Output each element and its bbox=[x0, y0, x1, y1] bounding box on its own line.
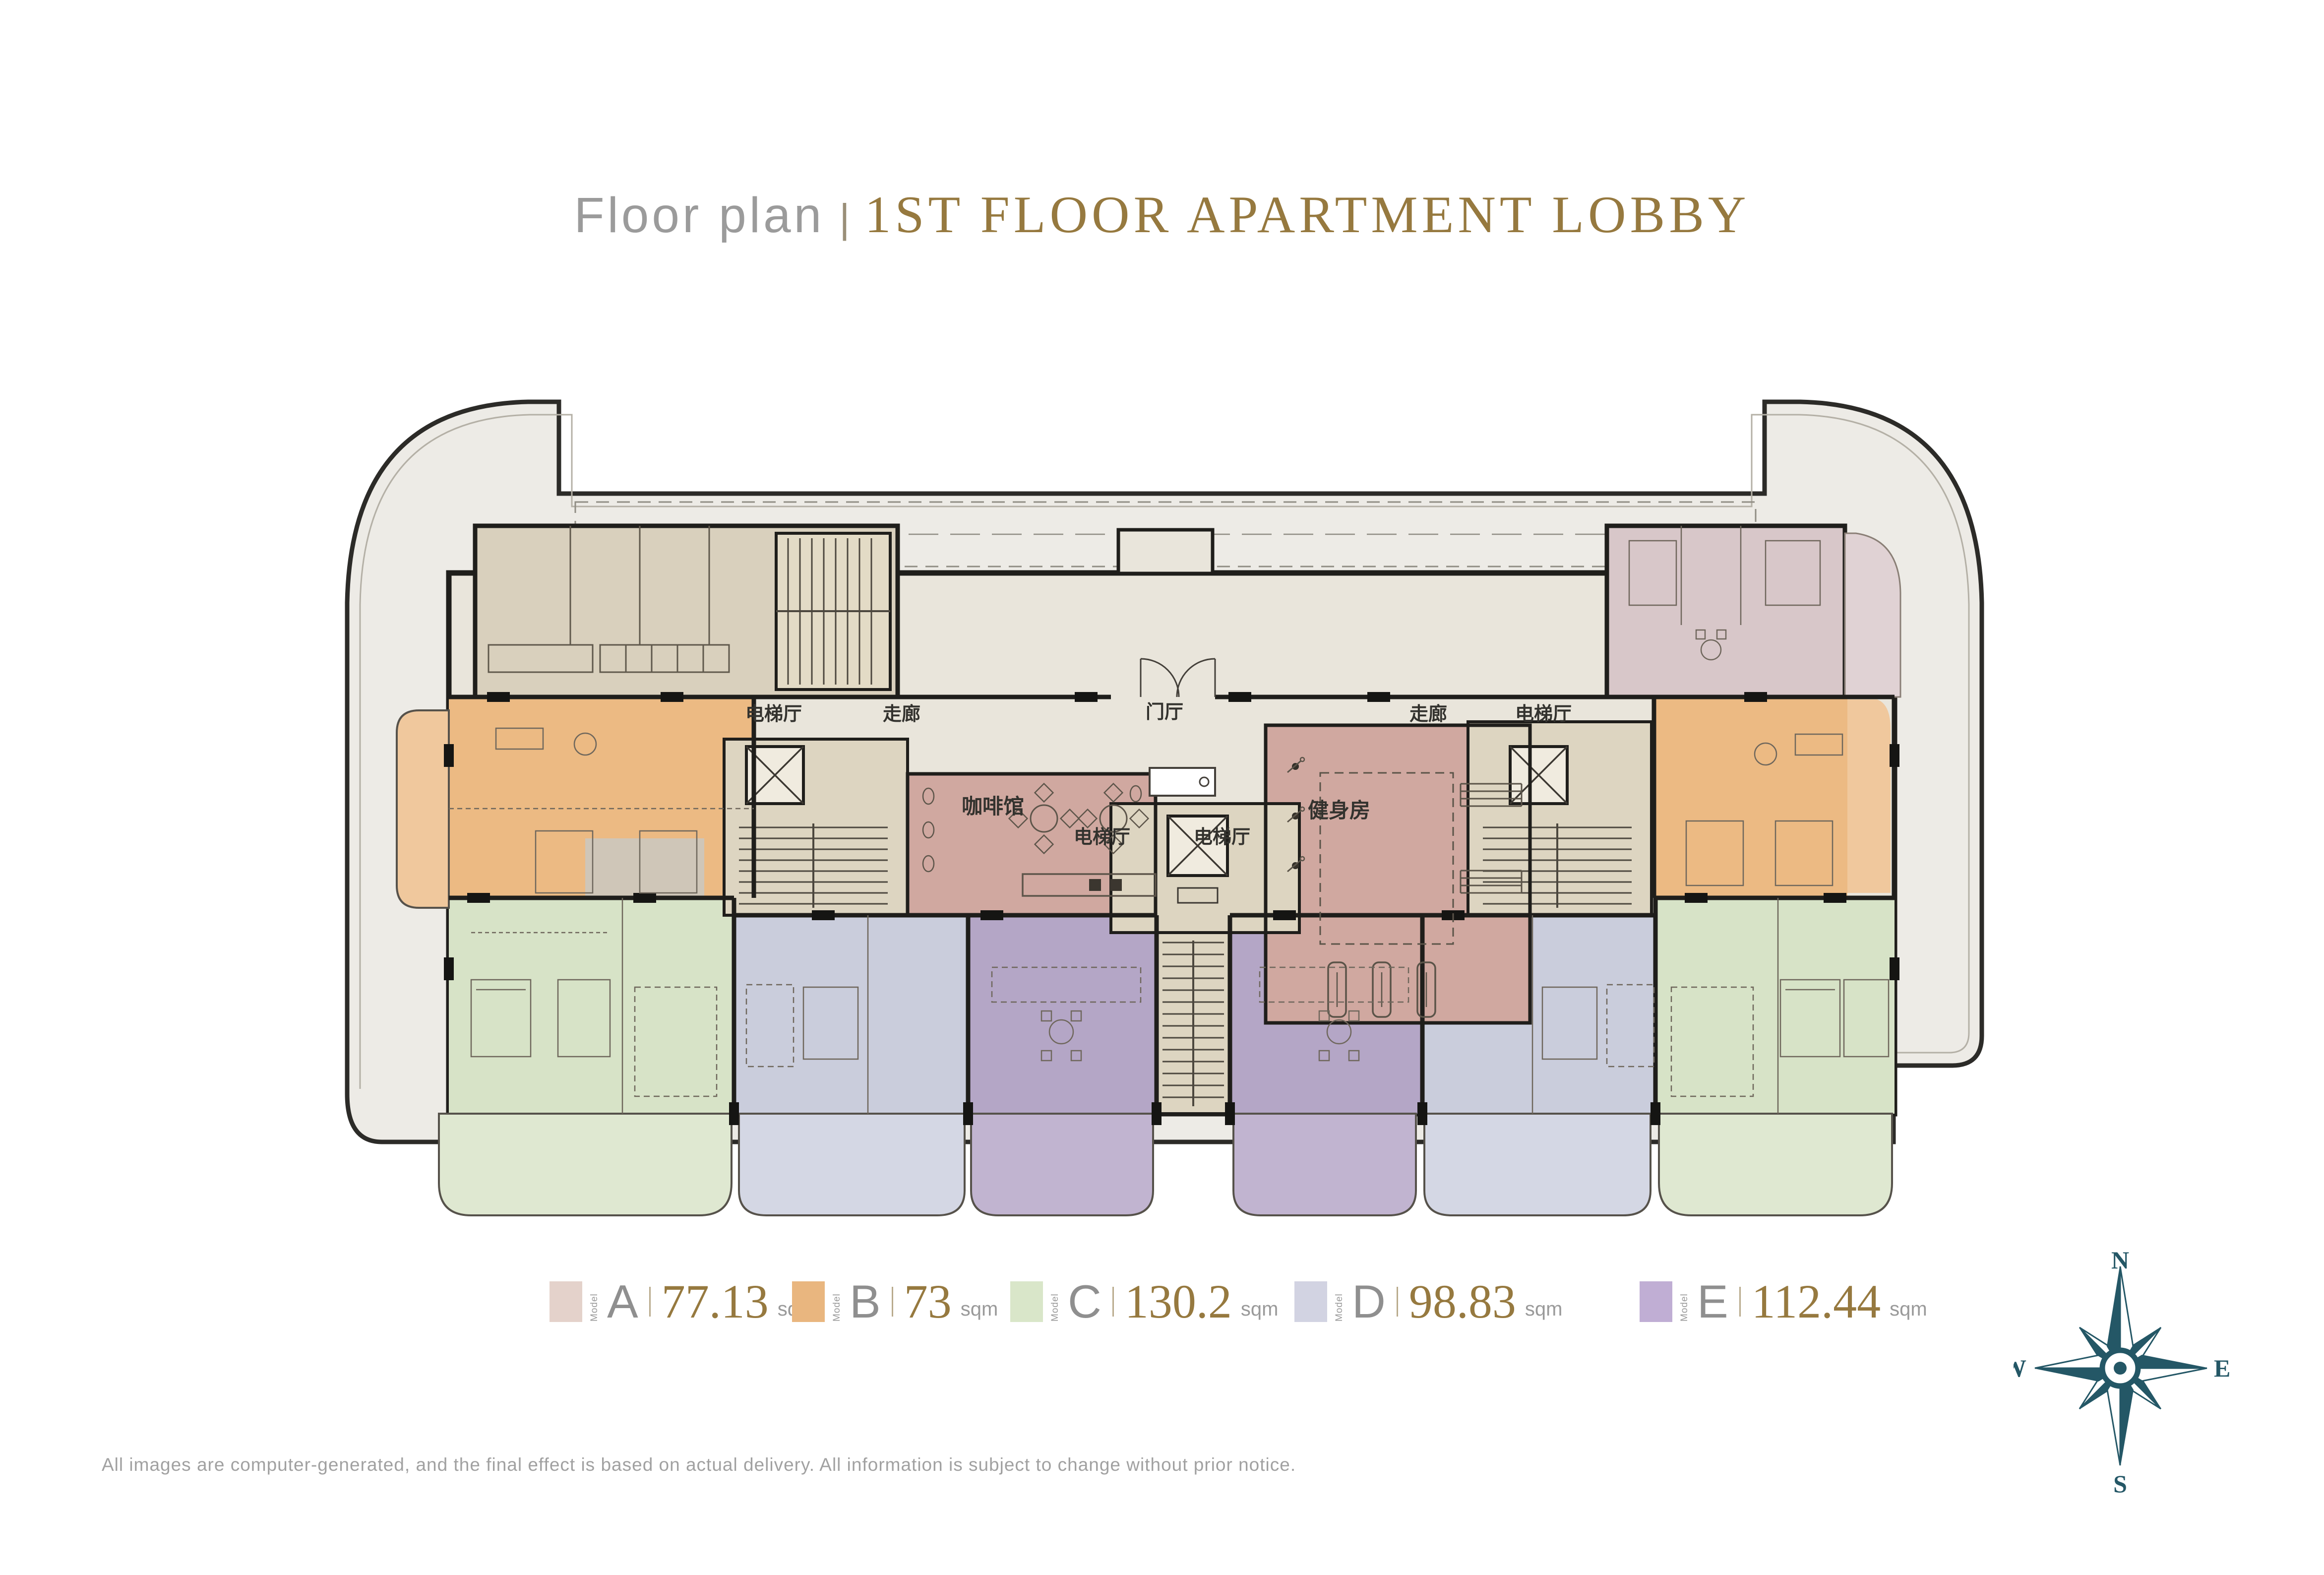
compass-west-label: W bbox=[2014, 1354, 2026, 1382]
title-main: 1ST FLOOR APARTMENT LOBBY bbox=[865, 185, 1750, 245]
legend-divider bbox=[1397, 1287, 1398, 1317]
label-gym: 健身房 bbox=[1308, 798, 1370, 822]
legend-divider bbox=[649, 1287, 651, 1317]
legend-item-c: Model C 130.2 sqm bbox=[1010, 1279, 1278, 1324]
legend-swatch-c bbox=[1010, 1281, 1043, 1322]
unit-c-left bbox=[449, 898, 734, 1114]
legend-model-label: Model bbox=[1334, 1282, 1345, 1322]
unit-b-right bbox=[1654, 697, 1847, 898]
legend-letter: C bbox=[1068, 1278, 1101, 1325]
reception-desk bbox=[1150, 768, 1215, 796]
legend-divider bbox=[892, 1287, 893, 1317]
legend-area: 130.2 bbox=[1125, 1278, 1232, 1325]
legend-area: 98.83 bbox=[1409, 1278, 1516, 1325]
compass-north-label: N bbox=[2111, 1246, 2129, 1274]
compass-east-label: E bbox=[2214, 1354, 2230, 1382]
label-entrance-hall: 门厅 bbox=[1146, 701, 1183, 723]
legend-swatch-e bbox=[1640, 1281, 1672, 1322]
legend-area: 73 bbox=[904, 1278, 952, 1325]
legend-unit: sqm bbox=[961, 1298, 998, 1324]
legend-area: 112.44 bbox=[1752, 1278, 1881, 1325]
compass-rose: N E S W bbox=[2014, 1223, 2242, 1501]
label-corridor-right: 走廊 bbox=[1409, 703, 1447, 725]
label-corridor-left: 走廊 bbox=[883, 703, 920, 725]
service-block-topleft bbox=[475, 526, 898, 697]
legend-model-label: Model bbox=[1050, 1282, 1061, 1322]
compass-hub-dot bbox=[2114, 1362, 2127, 1375]
disclaimer-text: All images are computer-generated, and t… bbox=[102, 1454, 1296, 1475]
legend-swatch-d bbox=[1294, 1281, 1327, 1322]
legend-unit: sqm bbox=[1890, 1298, 1927, 1324]
service-wedge bbox=[585, 838, 704, 898]
label-cafe: 咖啡馆 bbox=[962, 794, 1024, 819]
legend-item-b: Model B 73 sqm bbox=[792, 1279, 998, 1324]
legend-unit: sqm bbox=[1241, 1298, 1279, 1324]
legend-letter: D bbox=[1352, 1278, 1386, 1325]
unit-c-right bbox=[1655, 898, 1895, 1114]
page-title: Floor plan | 1ST FLOOR APARTMENT LOBBY bbox=[0, 185, 2324, 245]
compass-south-label: S bbox=[2113, 1470, 2127, 1498]
unit-b-right-balcony bbox=[1847, 699, 1891, 893]
legend-divider bbox=[1112, 1287, 1114, 1317]
legend-letter: E bbox=[1697, 1278, 1728, 1325]
legend-model-label: Model bbox=[832, 1282, 843, 1322]
label-elevator-hall-center-left: 电梯厅 bbox=[1074, 826, 1130, 848]
label-elevator-hall-left: 电梯厅 bbox=[745, 703, 802, 725]
unit-e-left bbox=[968, 915, 1157, 1114]
unit-a-block bbox=[1607, 526, 1900, 697]
stair-topleft bbox=[776, 533, 890, 690]
legend-swatch-a bbox=[550, 1281, 582, 1322]
title-prefix: Floor plan bbox=[574, 187, 825, 244]
legend-unit: sqm bbox=[1525, 1298, 1563, 1324]
label-elevator-hall-center-right: 电梯厅 bbox=[1194, 826, 1250, 848]
legend-letter: A bbox=[607, 1278, 638, 1325]
label-elevator-hall-right: 电梯厅 bbox=[1515, 703, 1572, 725]
legend-item-e: Model E 112.44 sqm bbox=[1640, 1279, 1927, 1324]
unit-d-left bbox=[734, 915, 968, 1114]
legend-letter: B bbox=[850, 1278, 881, 1325]
title-divider: | bbox=[839, 195, 850, 242]
legend-model-label: Model bbox=[589, 1282, 600, 1322]
legend-divider bbox=[1739, 1287, 1741, 1317]
legend-item-d: Model D 98.83 sqm bbox=[1294, 1279, 1562, 1324]
legend-model-label: Model bbox=[1679, 1282, 1690, 1322]
legend-swatch-b bbox=[792, 1281, 825, 1322]
floor-plan: 电梯厅 走廊 门厅 走廊 电梯厅 咖啡馆 电梯厅 电梯厅 健身房 bbox=[322, 377, 2033, 1245]
legend-area: 77.13 bbox=[662, 1278, 769, 1325]
legend-item-a: Model A 77.13 sqm bbox=[550, 1279, 815, 1324]
